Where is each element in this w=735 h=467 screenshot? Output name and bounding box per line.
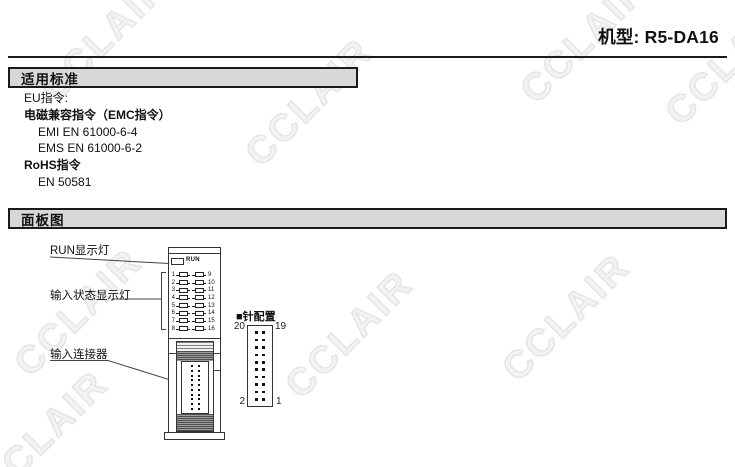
led-number-left: 2 — [169, 280, 175, 286]
pin-config-dot — [255, 331, 258, 334]
led-number-left: 8 — [169, 326, 175, 332]
led-row: 210 — [169, 279, 221, 287]
connector-pin-dot — [198, 408, 200, 410]
led-indicator — [195, 280, 204, 285]
connector-pin-dot — [198, 379, 200, 381]
module-side-tick — [213, 370, 221, 371]
pin-config-dot — [262, 376, 265, 379]
led-indicator — [179, 272, 188, 277]
module-divider-line — [168, 338, 221, 339]
pin-config-dot — [255, 383, 258, 386]
led-indicator — [195, 326, 204, 331]
pin-config-dot — [255, 398, 258, 401]
led-number-right: 12 — [208, 295, 215, 301]
connector-pin-dot — [191, 403, 193, 405]
led-indicator — [195, 288, 204, 293]
header-rule — [8, 56, 727, 58]
watermark-text: CCLAIR — [658, 0, 735, 134]
pin-config-dot — [255, 361, 258, 364]
pin-config-dot — [262, 331, 265, 334]
led-indicator — [179, 295, 188, 300]
callout-input-status-leds: 输入状态显示灯 — [50, 287, 131, 303]
connector-pin-dot — [198, 384, 200, 386]
connector-pin-area — [181, 361, 209, 414]
standards-line: EU指令: — [24, 90, 171, 107]
connector-pin-dot — [191, 375, 193, 377]
standards-line: EN 50581 — [24, 174, 171, 191]
connector-pin-dot — [191, 365, 193, 367]
led-number-right: 15 — [208, 318, 215, 324]
connector-pin-dot — [191, 398, 193, 400]
pin-config-dot — [262, 361, 265, 364]
led-indicator — [179, 311, 188, 316]
connector-pin-dot — [191, 384, 193, 386]
run-led — [171, 258, 184, 265]
connector-pin-dot — [191, 408, 193, 410]
connector-pin-dot — [198, 394, 200, 396]
pin-config-dot — [255, 354, 258, 357]
section-heading-panel-label: 面板图 — [21, 209, 65, 229]
connector-pin-dot — [198, 389, 200, 391]
pin-config-connector — [247, 325, 273, 407]
led-indicator — [195, 272, 204, 277]
led-row: 412 — [169, 294, 221, 302]
page-title: 机型: R5-DA16 — [598, 24, 719, 49]
connector-hatch-top — [177, 342, 213, 351]
led-indicator — [179, 288, 188, 293]
led-indicator — [195, 303, 204, 308]
watermark-text: CCLAIR — [0, 363, 117, 467]
section-heading-panel: 面板图 — [8, 208, 727, 229]
led-number-right: 13 — [208, 303, 215, 309]
pin-number-2: 2 — [234, 396, 245, 407]
module-side-tick — [213, 353, 221, 354]
connector-pin-dot — [198, 365, 200, 367]
connector-pin-dot — [191, 370, 193, 372]
pin-config-dot — [262, 398, 265, 401]
module-base-plate — [164, 432, 225, 440]
input-connector — [176, 341, 214, 432]
callout-run-indicator: RUN显示灯 — [50, 242, 109, 258]
pin-config-dot — [262, 354, 265, 357]
led-number-left: 4 — [169, 295, 175, 301]
led-number-right: 16 — [208, 326, 215, 332]
led-row: 715 — [169, 317, 221, 325]
pin-config-dot — [262, 346, 265, 349]
pin-config-dot — [255, 368, 258, 371]
standards-line: EMI EN 61000-6-4 — [24, 124, 171, 141]
callout-input-connector: 输入连接器 — [50, 346, 108, 362]
led-number-right: 10 — [208, 280, 215, 286]
led-indicator — [179, 318, 188, 323]
pin-config-dot — [255, 391, 258, 394]
led-indicator — [179, 326, 188, 331]
pin-config-dot — [255, 346, 258, 349]
pin-config-dot — [262, 383, 265, 386]
connector-pin-dot — [191, 389, 193, 391]
led-number-left: 6 — [169, 310, 175, 316]
pin-config-dot — [262, 339, 265, 342]
pin-number-19: 19 — [275, 321, 286, 332]
connector-pin-dot — [191, 394, 193, 396]
watermark-text: CCLAIR — [238, 31, 383, 176]
standards-line: RoHS指令 — [24, 157, 171, 174]
connector-pin-dot — [198, 403, 200, 405]
led-indicator — [195, 295, 204, 300]
connector-pin-dot — [198, 370, 200, 372]
led-indicator — [195, 311, 204, 316]
led-rows: 19210311412513614715816 — [169, 271, 221, 333]
standards-list: EU指令:电磁兼容指令（EMC指令）EMI EN 61000-6-4EMS EN… — [24, 90, 171, 191]
watermark-text: CCLAIR — [495, 246, 640, 391]
pin-number-20: 20 — [226, 321, 245, 332]
led-row: 513 — [169, 302, 221, 310]
module-side-tick — [168, 353, 176, 354]
datasheet-page: CCLAIRCCLAIRCCLAIRCCLAIRCCLAIRCCLAIRCCLA… — [0, 0, 735, 467]
led-number-left: 5 — [169, 303, 175, 309]
run-led-label: RUN — [186, 257, 200, 263]
section-heading-standards-label: 适用标准 — [21, 68, 79, 88]
led-number-right: 14 — [208, 310, 215, 316]
connector-pin-dot — [198, 398, 200, 400]
connector-pin-dot — [198, 375, 200, 377]
status-bracket — [162, 273, 167, 330]
module-top-band-line — [168, 253, 221, 254]
watermark-text: CCLAIR — [278, 263, 423, 408]
led-number-right: 9 — [208, 272, 211, 278]
pin-config-dot — [262, 368, 265, 371]
connector-pin-dot — [191, 379, 193, 381]
section-heading-standards: 适用标准 — [8, 67, 358, 88]
standards-line: 电磁兼容指令（EMC指令） — [24, 107, 171, 124]
led-row: 816 — [169, 325, 221, 333]
pin-config-dot — [262, 391, 265, 394]
pin-number-1: 1 — [276, 396, 282, 407]
watermark-text: CCLAIR — [7, 241, 152, 386]
connector-hatch-upper — [177, 351, 213, 361]
pin-config-dot — [255, 376, 258, 379]
led-indicator — [179, 303, 188, 308]
led-row: 311 — [169, 286, 221, 294]
led-row: 19 — [169, 271, 221, 279]
led-number-left: 1 — [169, 272, 175, 278]
led-number-left: 3 — [169, 287, 175, 293]
led-indicator — [195, 318, 204, 323]
standards-line: EMS EN 61000-6-2 — [24, 140, 171, 157]
led-row: 614 — [169, 309, 221, 317]
led-indicator — [179, 280, 188, 285]
led-number-right: 11 — [208, 287, 214, 293]
led-number-left: 7 — [169, 318, 175, 324]
connector-hatch-bottom — [177, 414, 213, 431]
pin-config-dot — [255, 339, 258, 342]
